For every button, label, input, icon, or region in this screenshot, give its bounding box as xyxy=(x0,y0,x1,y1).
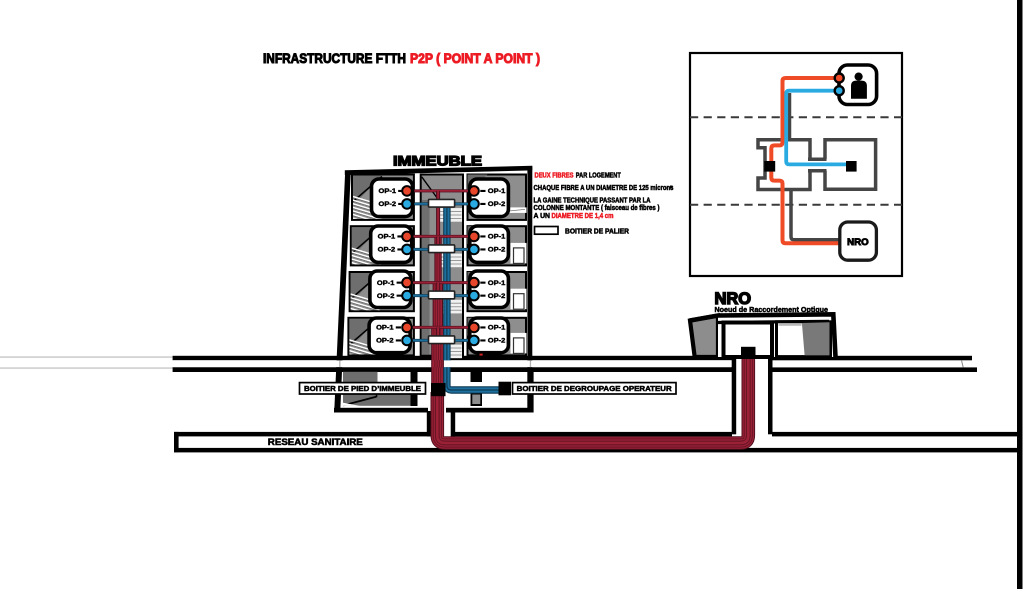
svg-text:DEUX FIBRES: DEUX FIBRES xyxy=(535,173,574,180)
svg-text:OP-1: OP-1 xyxy=(488,280,506,287)
svg-text:BOITIER DE PIED D’IMMEUBLE: BOITIER DE PIED D’IMMEUBLE xyxy=(304,384,421,393)
svg-text:NRO: NRO xyxy=(847,236,869,247)
svg-text:OP-2: OP-2 xyxy=(379,201,397,208)
svg-text:OP-2: OP-2 xyxy=(488,293,506,300)
svg-text:OP-1: OP-1 xyxy=(378,234,396,241)
svg-text:OP-1: OP-1 xyxy=(379,188,397,195)
svg-text:OP-1: OP-1 xyxy=(488,325,506,332)
svg-text:OP-2: OP-2 xyxy=(376,338,394,345)
svg-text:OP-2: OP-2 xyxy=(378,247,396,254)
svg-text:OP-2: OP-2 xyxy=(488,247,506,254)
svg-text:RESEAU SANITAIRE: RESEAU SANITAIRE xyxy=(268,437,363,447)
svg-text:Noeud de Raccordement Optique: Noeud de Raccordement Optique xyxy=(715,305,829,314)
svg-text:IMMEUBLE: IMMEUBLE xyxy=(393,153,482,169)
svg-text:OP-2: OP-2 xyxy=(488,338,506,345)
svg-text:INFRASTRUCTURE FTTH: INFRASTRUCTURE FTTH xyxy=(263,51,406,66)
svg-text:PAR LOGEMENT: PAR LOGEMENT xyxy=(576,173,622,180)
svg-text:OP-1: OP-1 xyxy=(488,188,506,195)
svg-text:OP-2: OP-2 xyxy=(488,201,506,208)
svg-text:P2P ( POINT A POINT ): P2P ( POINT A POINT ) xyxy=(410,51,540,66)
svg-text:OP-1: OP-1 xyxy=(488,234,506,241)
svg-text:COLONNE MONTANTE ( faisceau de: COLONNE MONTANTE ( faisceau de fibres ) xyxy=(534,205,660,212)
svg-text:BOITIER DE DEGROUPAGE OPERATEU: BOITIER DE DEGROUPAGE OPERATEUR xyxy=(517,384,673,393)
svg-text:CHAQUE FIBRE A UN DIAMETRE DE: CHAQUE FIBRE A UN DIAMETRE DE 125 micron… xyxy=(534,185,674,192)
svg-text:BOITIER DE PALIER: BOITIER DE PALIER xyxy=(565,229,629,236)
svg-text:LA GAINE TECHNIQUE PASSANT PAR: LA GAINE TECHNIQUE PASSANT PAR LA xyxy=(534,198,651,205)
svg-text:OP-2: OP-2 xyxy=(377,293,395,300)
svg-text:DIAMETRE DE 1,4 cm: DIAMETRE DE 1,4 cm xyxy=(552,213,614,220)
svg-text:OP-1: OP-1 xyxy=(376,325,394,332)
svg-text:A UN: A UN xyxy=(534,213,551,220)
svg-text:OP-1: OP-1 xyxy=(377,280,395,287)
